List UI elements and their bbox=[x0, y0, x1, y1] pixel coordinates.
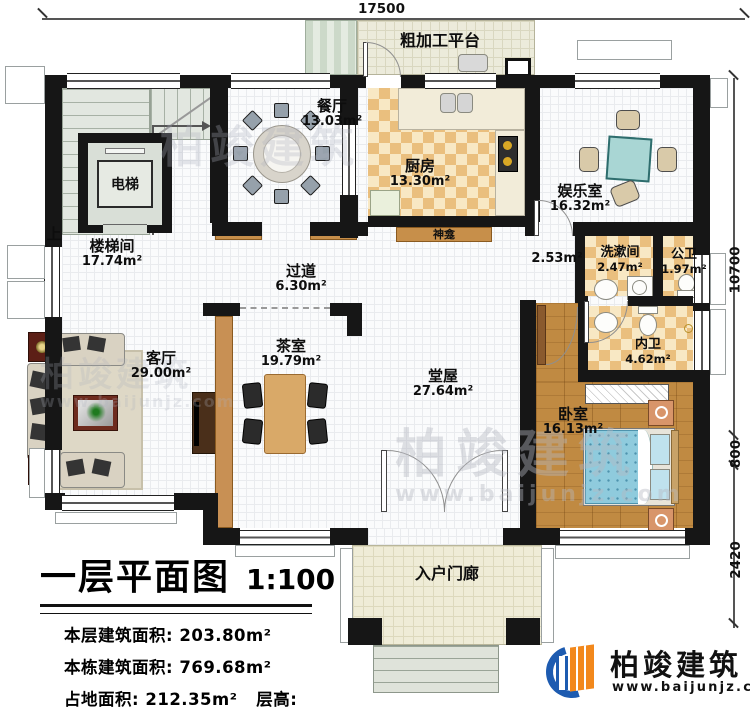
dining-chair bbox=[315, 146, 330, 161]
room-name: 厨房 bbox=[390, 158, 450, 175]
wall bbox=[45, 317, 62, 450]
elevator-label: 电梯 bbox=[111, 174, 139, 194]
window bbox=[425, 73, 496, 89]
info-value: 212.35m² bbox=[145, 690, 237, 709]
room-label-entertainment: 娱乐室16.32m² bbox=[550, 183, 610, 214]
company-name: 柏竣建筑 bbox=[610, 642, 742, 684]
wall bbox=[685, 528, 710, 545]
plan-title: 一层平面图 bbox=[40, 548, 230, 600]
dining-chair bbox=[274, 189, 289, 204]
info-label: 本栋建筑面积: bbox=[64, 658, 173, 677]
tea-table bbox=[264, 374, 306, 454]
washroom-sink bbox=[594, 279, 618, 300]
room-area: 1.97m² bbox=[661, 263, 706, 276]
wall bbox=[203, 303, 240, 316]
window bbox=[62, 495, 174, 511]
room-name: 楼梯间 bbox=[82, 238, 142, 255]
window bbox=[560, 530, 685, 545]
room-area: 2.53m² bbox=[531, 252, 582, 267]
sofa-cushion bbox=[62, 336, 81, 352]
room-label-washroom: 洗漱间2.47m² bbox=[597, 246, 642, 273]
dining-chair bbox=[233, 146, 248, 161]
floor-drain-icon bbox=[684, 324, 693, 333]
mahjong-table bbox=[606, 136, 653, 183]
room-name: 粗加工平台 bbox=[400, 31, 480, 50]
inner-bath-toilet-tank bbox=[638, 306, 658, 314]
room-area: 16.32m² bbox=[550, 200, 610, 215]
room-label-stairwell: 楼梯间17.74m² bbox=[82, 238, 142, 269]
info-label: 本层建筑面积: bbox=[64, 626, 173, 645]
room-label-niche-corridor: 2.53m² bbox=[531, 252, 582, 267]
wall bbox=[693, 303, 710, 311]
wall bbox=[347, 316, 362, 336]
sofa-cushion bbox=[66, 459, 85, 477]
room-label-bedroom: 卧室16.13m² bbox=[543, 406, 603, 437]
window-sill bbox=[555, 545, 690, 559]
window-sill bbox=[5, 66, 45, 104]
dimension-line-top bbox=[42, 18, 745, 20]
floor-plan: 神龛 bbox=[0, 0, 750, 711]
wall bbox=[401, 75, 425, 88]
entry-door-leaf bbox=[502, 450, 508, 512]
washing-machine-drum-icon bbox=[632, 280, 647, 295]
dimension-right-value: 800 bbox=[728, 440, 744, 468]
stove-burner-icon bbox=[503, 157, 512, 166]
inner-bath-toilet bbox=[639, 314, 657, 336]
wall bbox=[218, 528, 240, 545]
tea-chair bbox=[242, 382, 264, 409]
dimension-right-value: 2420 bbox=[728, 541, 744, 579]
room-area: 2.47m² bbox=[597, 261, 642, 274]
room-name: 洗漱间 bbox=[597, 246, 642, 261]
opening-dashed-line bbox=[240, 307, 330, 309]
dimension-top-value: 17500 bbox=[358, 1, 405, 17]
window-sill bbox=[710, 78, 728, 108]
bedroom-door-leaf bbox=[537, 305, 546, 365]
room-label-hall: 堂屋27.64m² bbox=[413, 368, 473, 399]
room-name: 入户门廊 bbox=[415, 564, 479, 583]
nightstand-knob-icon bbox=[655, 514, 668, 527]
room-name: 娱乐室 bbox=[550, 183, 610, 200]
plant-icon bbox=[86, 402, 106, 422]
info-label: 占地面积: bbox=[64, 690, 139, 709]
stairs-direction-line bbox=[152, 125, 204, 127]
elevator-door bbox=[103, 224, 147, 234]
fridge bbox=[370, 190, 400, 216]
info-label: 层高: bbox=[256, 690, 297, 709]
wall bbox=[496, 75, 575, 88]
room-label-public-bath: 公卫1.97m² bbox=[661, 248, 706, 275]
room-label-up: 上 bbox=[46, 226, 61, 243]
window-sill bbox=[29, 448, 45, 498]
tv-icon bbox=[194, 402, 199, 446]
window-sill bbox=[7, 281, 45, 319]
logo-building-blue-icon bbox=[556, 656, 568, 690]
window bbox=[575, 73, 660, 89]
wall bbox=[368, 216, 525, 227]
window bbox=[694, 311, 710, 373]
room-label-living: 客厅29.00m² bbox=[131, 350, 191, 381]
wall bbox=[174, 493, 218, 510]
interior-window bbox=[342, 125, 356, 195]
room-label-inner-bath: 内卫4.62m² bbox=[625, 338, 670, 365]
dining-table-top bbox=[263, 135, 301, 173]
info-line-floor-area: 本层建筑面积: 203.80m² bbox=[64, 622, 340, 646]
window-sill bbox=[577, 40, 672, 60]
room-name: 茶室 bbox=[261, 338, 321, 355]
wall bbox=[212, 222, 262, 236]
sofa-cushion bbox=[92, 458, 112, 476]
up-mark: 上 bbox=[46, 225, 61, 243]
tea-chair bbox=[307, 382, 329, 409]
window bbox=[44, 247, 60, 317]
room-area: 29.00m² bbox=[131, 367, 191, 382]
bed-pillow bbox=[650, 469, 670, 500]
room-area: 27.64m² bbox=[413, 385, 473, 400]
room-area: 17.74m² bbox=[82, 255, 142, 270]
company-website: www.baijunjz.com bbox=[612, 680, 750, 695]
wall bbox=[573, 222, 710, 236]
room-label-dining: 餐厅13.03m² bbox=[302, 98, 362, 129]
nightstand-knob-icon bbox=[655, 406, 668, 419]
info-line-footprint: 占地面积: 212.35m² 层高: 3.9m bbox=[64, 686, 340, 711]
tea-chair bbox=[242, 418, 264, 445]
room-name: 公卫 bbox=[661, 248, 706, 263]
room-area: 13.30m² bbox=[390, 175, 450, 190]
logo-building-orange-icon bbox=[570, 644, 594, 691]
wall bbox=[45, 75, 67, 88]
bed-pillow bbox=[650, 434, 670, 465]
plan-scale: 1:100 bbox=[246, 563, 335, 596]
room-label-kitchen: 厨房13.30m² bbox=[390, 158, 450, 189]
room-area: 13.03m² bbox=[302, 115, 362, 130]
dimension-tick bbox=[739, 8, 750, 19]
dimension-right-value: 10700 bbox=[727, 247, 743, 294]
window-sill bbox=[710, 253, 726, 305]
wall bbox=[660, 75, 710, 88]
room-label-platform: 粗加工平台 bbox=[400, 32, 480, 50]
room-area: 6.30m² bbox=[275, 280, 326, 295]
room-name: 客厅 bbox=[131, 350, 191, 367]
wall bbox=[45, 88, 62, 247]
elevator-box: 电梯 bbox=[97, 160, 153, 208]
info-line-building-area: 本栋建筑面积: 769.68m² bbox=[64, 654, 340, 678]
wall bbox=[545, 528, 560, 545]
kitchen-sink bbox=[457, 93, 473, 113]
title-underline bbox=[40, 604, 312, 614]
porch-column bbox=[506, 618, 540, 645]
entry-steps bbox=[373, 645, 499, 693]
wall bbox=[520, 300, 536, 545]
room-area: 16.13m² bbox=[543, 423, 603, 438]
window bbox=[240, 530, 330, 545]
wall bbox=[330, 303, 362, 316]
doorway-threshold-floor bbox=[368, 528, 503, 545]
wall bbox=[693, 373, 710, 545]
bed-headboard bbox=[671, 430, 679, 504]
wall bbox=[575, 236, 585, 303]
shrine-label: 神龛 bbox=[433, 228, 455, 241]
porch-column bbox=[348, 618, 382, 645]
room-label-porch: 入户门廊 bbox=[415, 565, 479, 583]
tea-chair bbox=[307, 418, 329, 445]
room-area: 19.79m² bbox=[261, 355, 321, 370]
stove-burner-icon bbox=[503, 141, 512, 150]
info-value: 203.80m² bbox=[179, 626, 271, 645]
room-name: 卧室 bbox=[543, 406, 603, 423]
sofa-cushion bbox=[87, 336, 106, 353]
wall bbox=[330, 528, 368, 545]
wall bbox=[210, 83, 228, 223]
room-label-tea-room: 茶室19.79m² bbox=[261, 338, 321, 369]
room-name: 堂屋 bbox=[413, 368, 473, 385]
kitchen-sink bbox=[440, 93, 456, 113]
wall bbox=[203, 510, 218, 545]
title-block: 一层平面图 1:100 本层建筑面积: 203.80m² 本栋建筑面积: 769… bbox=[40, 548, 340, 711]
room-label-hallway: 过道6.30m² bbox=[275, 263, 326, 294]
window-sill bbox=[710, 309, 726, 375]
platform-sink bbox=[458, 54, 488, 72]
room-area: 4.62m² bbox=[625, 353, 670, 366]
window-sill bbox=[55, 512, 177, 524]
window bbox=[44, 450, 60, 495]
dimension-tick bbox=[37, 8, 48, 19]
wall bbox=[578, 370, 710, 382]
entertainment-chair bbox=[579, 147, 599, 172]
bed-mattress bbox=[585, 430, 643, 504]
dining-chair bbox=[274, 103, 289, 118]
room-name: 内卫 bbox=[625, 338, 670, 353]
room-name: 过道 bbox=[275, 263, 326, 280]
window bbox=[67, 73, 180, 89]
elevator-panel bbox=[105, 148, 145, 154]
window-sill bbox=[7, 245, 45, 279]
wall bbox=[628, 296, 693, 306]
title-row: 一层平面图 1:100 bbox=[40, 548, 340, 600]
room-name: 餐厅 bbox=[302, 98, 362, 115]
info-value: 769.68m² bbox=[179, 658, 271, 677]
window bbox=[231, 73, 330, 89]
entertainment-chair bbox=[616, 110, 640, 130]
shrine-cabinet: 神龛 bbox=[396, 227, 492, 242]
company-logo-icon bbox=[546, 640, 606, 702]
platform-side-stairs bbox=[305, 20, 357, 75]
porch-side-rail bbox=[541, 548, 554, 643]
wall bbox=[310, 222, 368, 236]
company-logo: 柏竣建筑 www.baijunjz.com bbox=[546, 636, 746, 706]
entertainment-chair bbox=[657, 147, 677, 172]
